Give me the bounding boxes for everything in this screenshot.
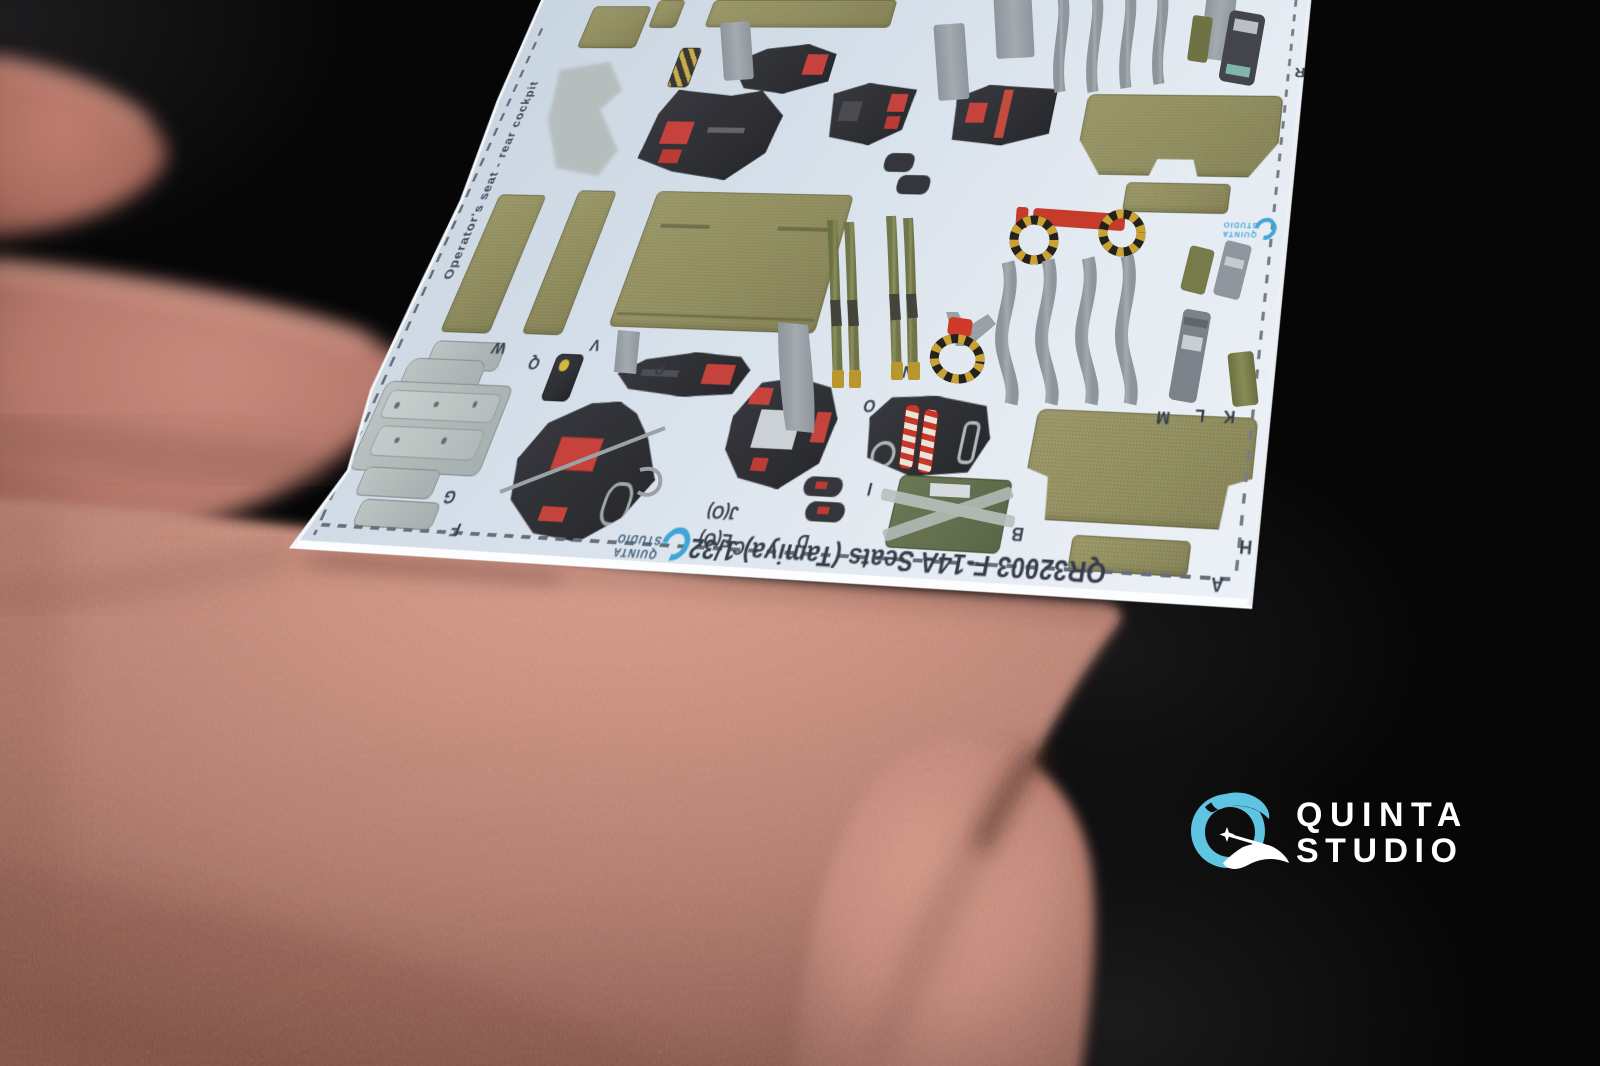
svg-text:STUDIO: STUDIO (1296, 832, 1463, 870)
svg-text:QUINTA: QUINTA (1296, 796, 1469, 834)
